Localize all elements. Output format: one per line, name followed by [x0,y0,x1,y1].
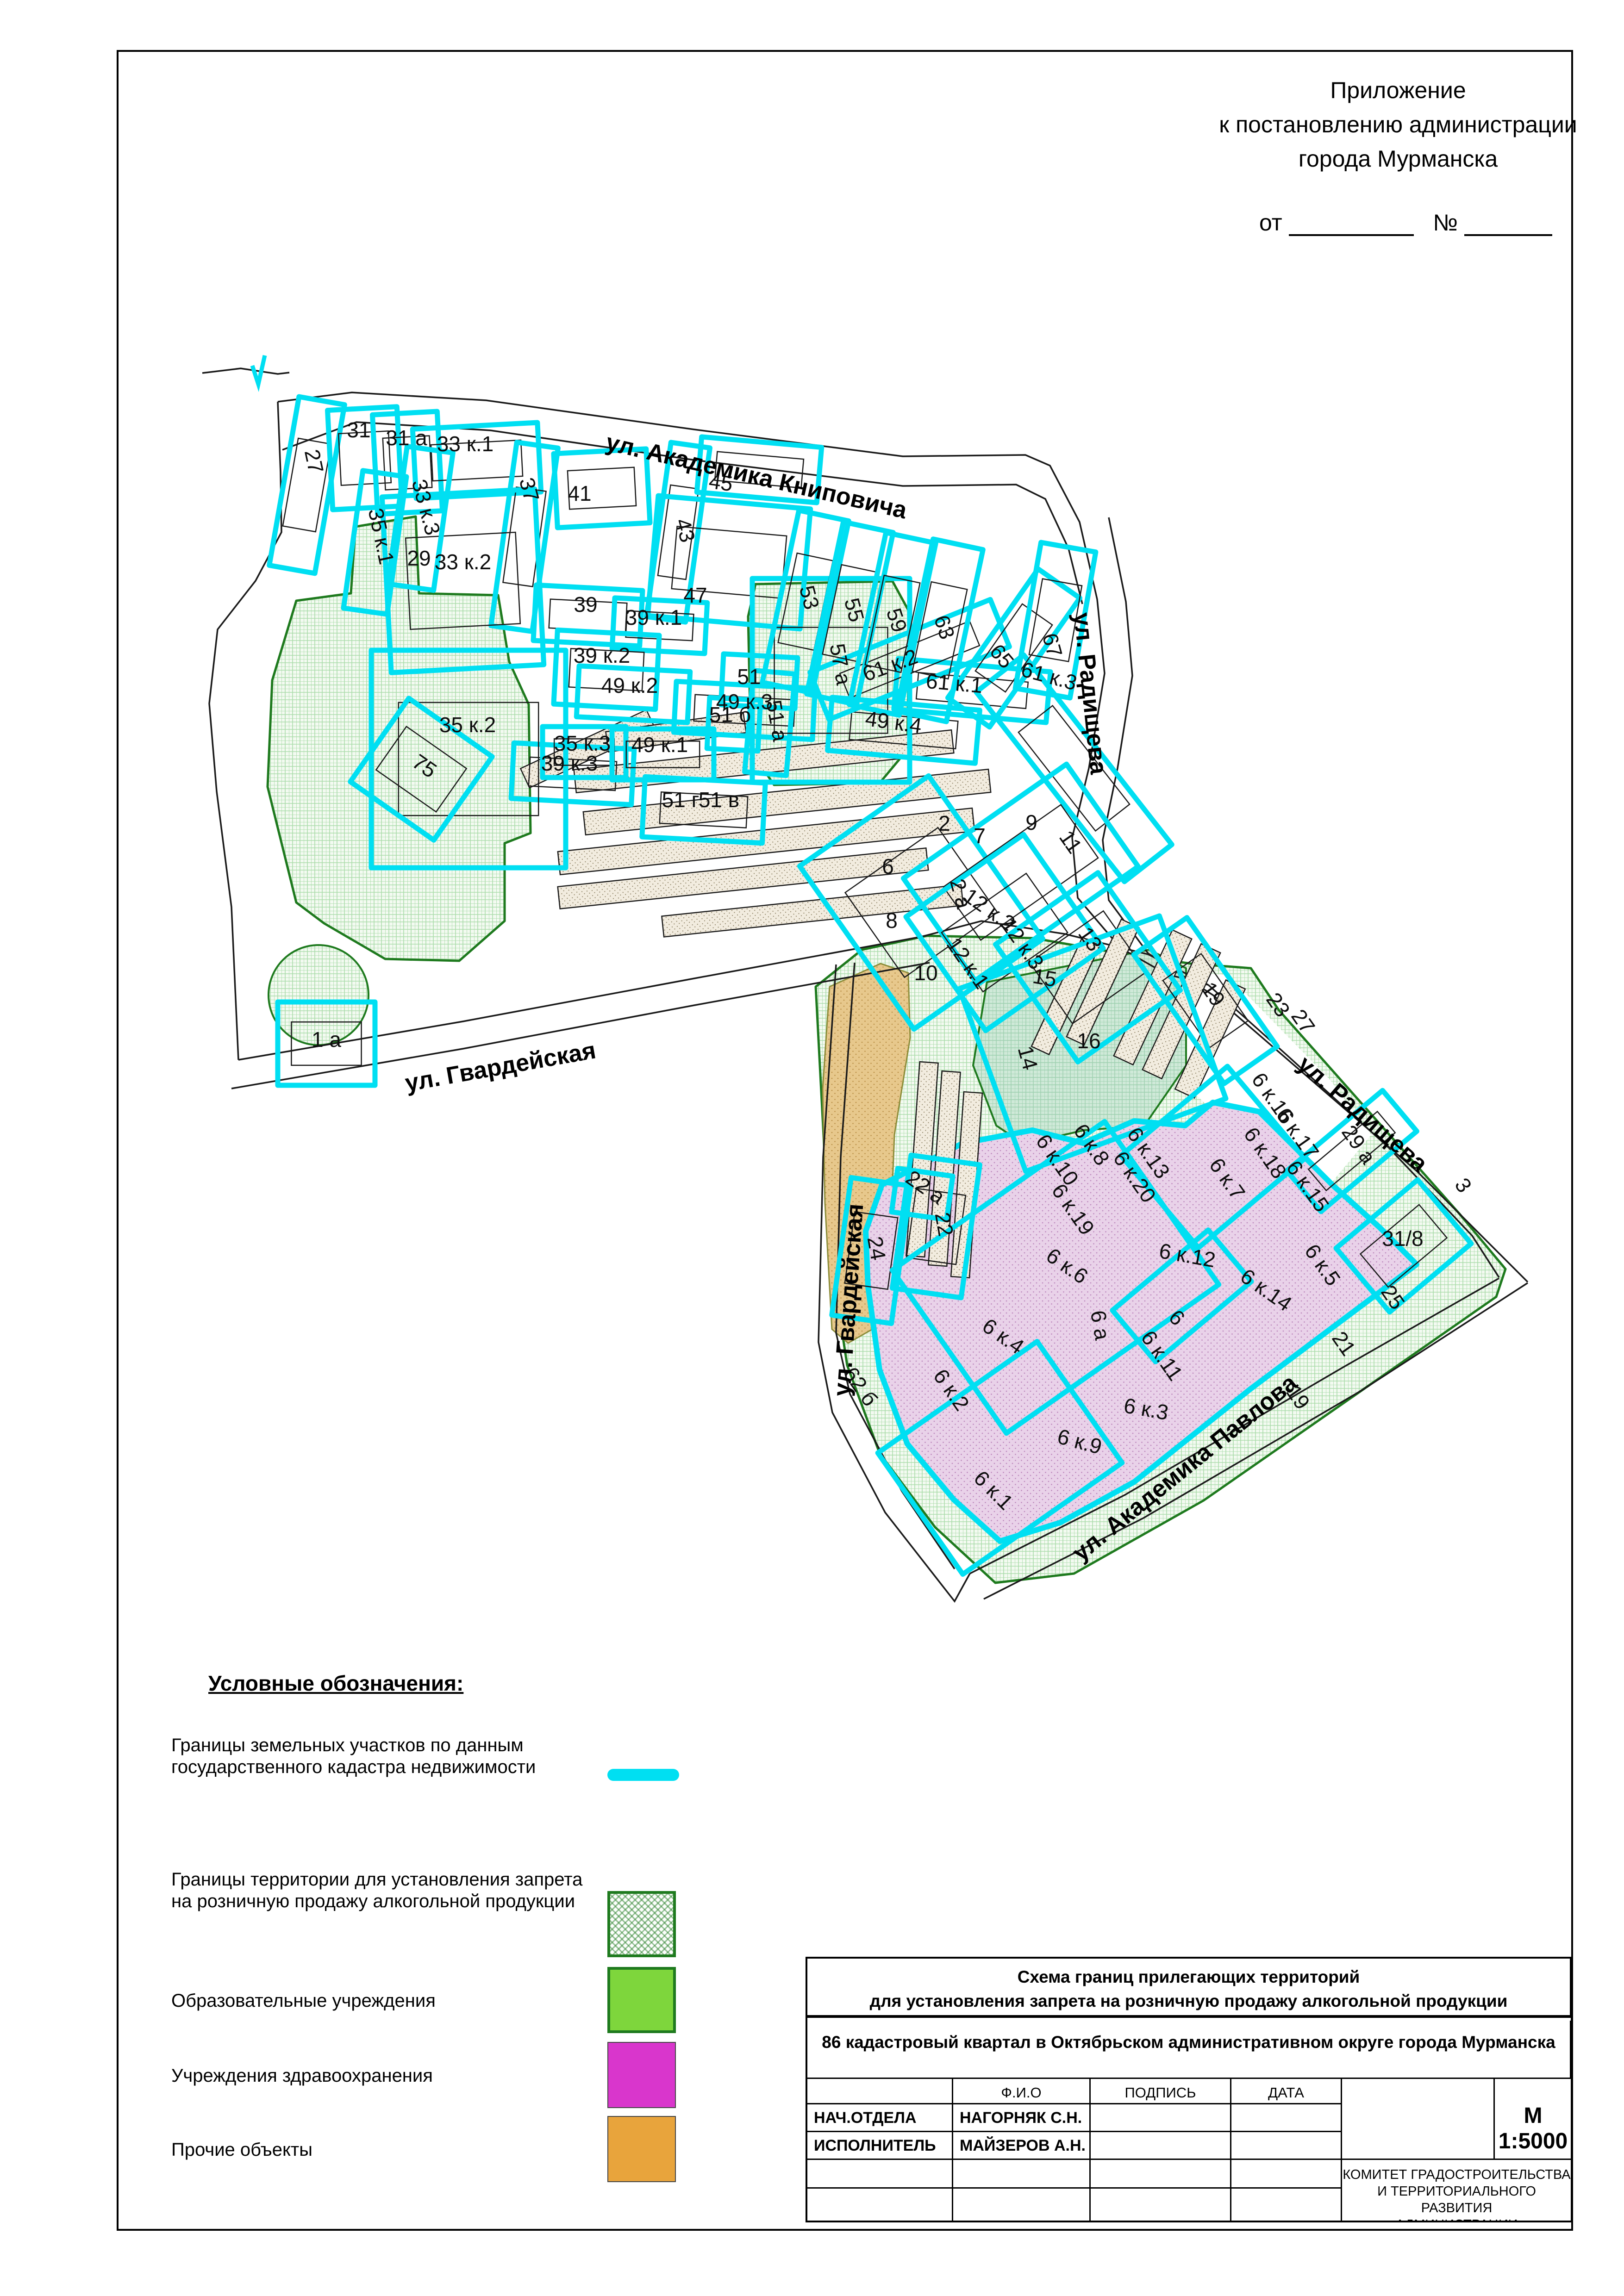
building-number-label: 31/8 [1382,1226,1424,1251]
row1-role: НАЧ.ОТДЕЛА [807,2104,953,2132]
building-number-label: 2 [938,811,950,835]
col-podpis: ПОДПИСЬ [1091,2079,1231,2104]
col-fio: Ф.И.О [953,2079,1091,2104]
building-number-label: 22 [931,1211,958,1238]
row3-date [1231,2160,1342,2189]
building-number-label: 49 к.1 [631,733,688,757]
building-number-label: 63 [930,612,960,642]
sheet: Приложение к постановлению администрации… [0,0,1624,2296]
col-blank [807,2079,953,2104]
row3-sign [1091,2160,1231,2189]
restriction-hatch-swatch [607,1891,676,1957]
building-number-label: 7 [974,824,986,848]
building-number-label: 6 а [1086,1308,1115,1342]
scheme-subtitle: 86 кадастровый квартал в Октябрьском адм… [807,2021,1571,2079]
committee-block: КОМИТЕТ ГРАДОСТРОИТЕЛЬСТВА И ТЕРРИТОРИАЛ… [1342,2160,1571,2221]
building-number-label: 29 [407,546,431,570]
stamp-empty-cell [1342,2079,1495,2160]
legend-item-cadastral: Границы земельных участков по данным гос… [171,1735,602,1778]
legend-item-other: Прочие объекты [171,2139,602,2161]
row2-sign [1091,2132,1231,2160]
building-number-label: 27 [300,447,329,475]
building-number-label: 15 [1031,964,1058,991]
education-swatch [607,1967,676,2033]
building-number-label: 8 [886,908,898,933]
map-scale: М 1:5000 [1495,2079,1571,2160]
building-number-label: 51 в [699,788,739,812]
building-number-label: 39 к.1 [625,605,682,629]
row4-name [953,2189,1091,2221]
building-number-label: 24 [863,1235,891,1262]
title-block: Схема границ прилегающих территорий для … [806,1957,1573,2222]
row3-role [807,2160,953,2189]
north-mark [252,355,265,384]
road-line [202,368,289,374]
building-number-label: 3 [1450,1173,1476,1197]
building-number-label: 6 [882,854,894,878]
building-number-label: 49 к.2 [601,673,658,697]
row3-name [953,2160,1091,2189]
building-number-label: 49 к.3 [716,690,773,714]
building-number-label: 39 к.2 [574,643,630,667]
building-number-label: 41 [568,481,591,505]
legend-title: Условные обозначения: [208,1671,463,1696]
row2-date [1231,2132,1342,2160]
legend-item-health: Учреждения здравоохранения [171,2065,602,2087]
health-swatch [607,2042,676,2108]
street-name-label: ул. Радищева [1068,611,1112,776]
legend-item-education: Образовательные учреждения [171,1990,602,2012]
row1-date [1231,2104,1342,2132]
other-swatch [607,2116,676,2182]
building-number-label: 35 к.3 [554,731,611,755]
cadastral-line-swatch [607,1769,679,1781]
building-number-label: 16 [1077,1029,1100,1053]
street-name-label: ул. Гвардейская [403,1037,598,1097]
row4-date [1231,2189,1342,2221]
row2-role: ИСПОЛНИТЕЛЬ [807,2132,953,2160]
building-number-label: 33 к.1 [437,432,493,456]
building-number-label: 1 а [312,1027,341,1052]
row2-name: МАЙЗЕРОВ А.Н. [953,2132,1091,2160]
building-number-label: 33 к.2 [435,550,491,574]
parcel-outline [491,442,558,632]
building-number-label: 35 к.2 [439,713,496,737]
building-number-label: 9 [1025,810,1037,834]
building-number-label: 51 [737,665,761,689]
building-number-label: 51 г [662,788,700,812]
row4-role [807,2189,953,2221]
building-number-label: 61 к.1 [925,669,984,697]
row4-sign [1091,2189,1231,2221]
row1-name: НАГОРНЯК С.Н. [953,2104,1091,2132]
legend: Условные обозначения: Границы земельных … [167,1666,731,2203]
scheme-title: Схема границ прилегающих территорий для … [807,1959,1571,2018]
row1-sign [1091,2104,1231,2132]
building-number-label: 47 [683,583,707,607]
building-number-label: 31 [347,418,370,442]
building-number-label: 39 [574,592,597,616]
col-data: ДАТА [1231,2079,1342,2104]
legend-item-restriction: Границы территории для установления запр… [171,1869,602,1912]
building-number-label: 31 а [386,426,427,450]
building-number-label: 10 [914,961,937,985]
